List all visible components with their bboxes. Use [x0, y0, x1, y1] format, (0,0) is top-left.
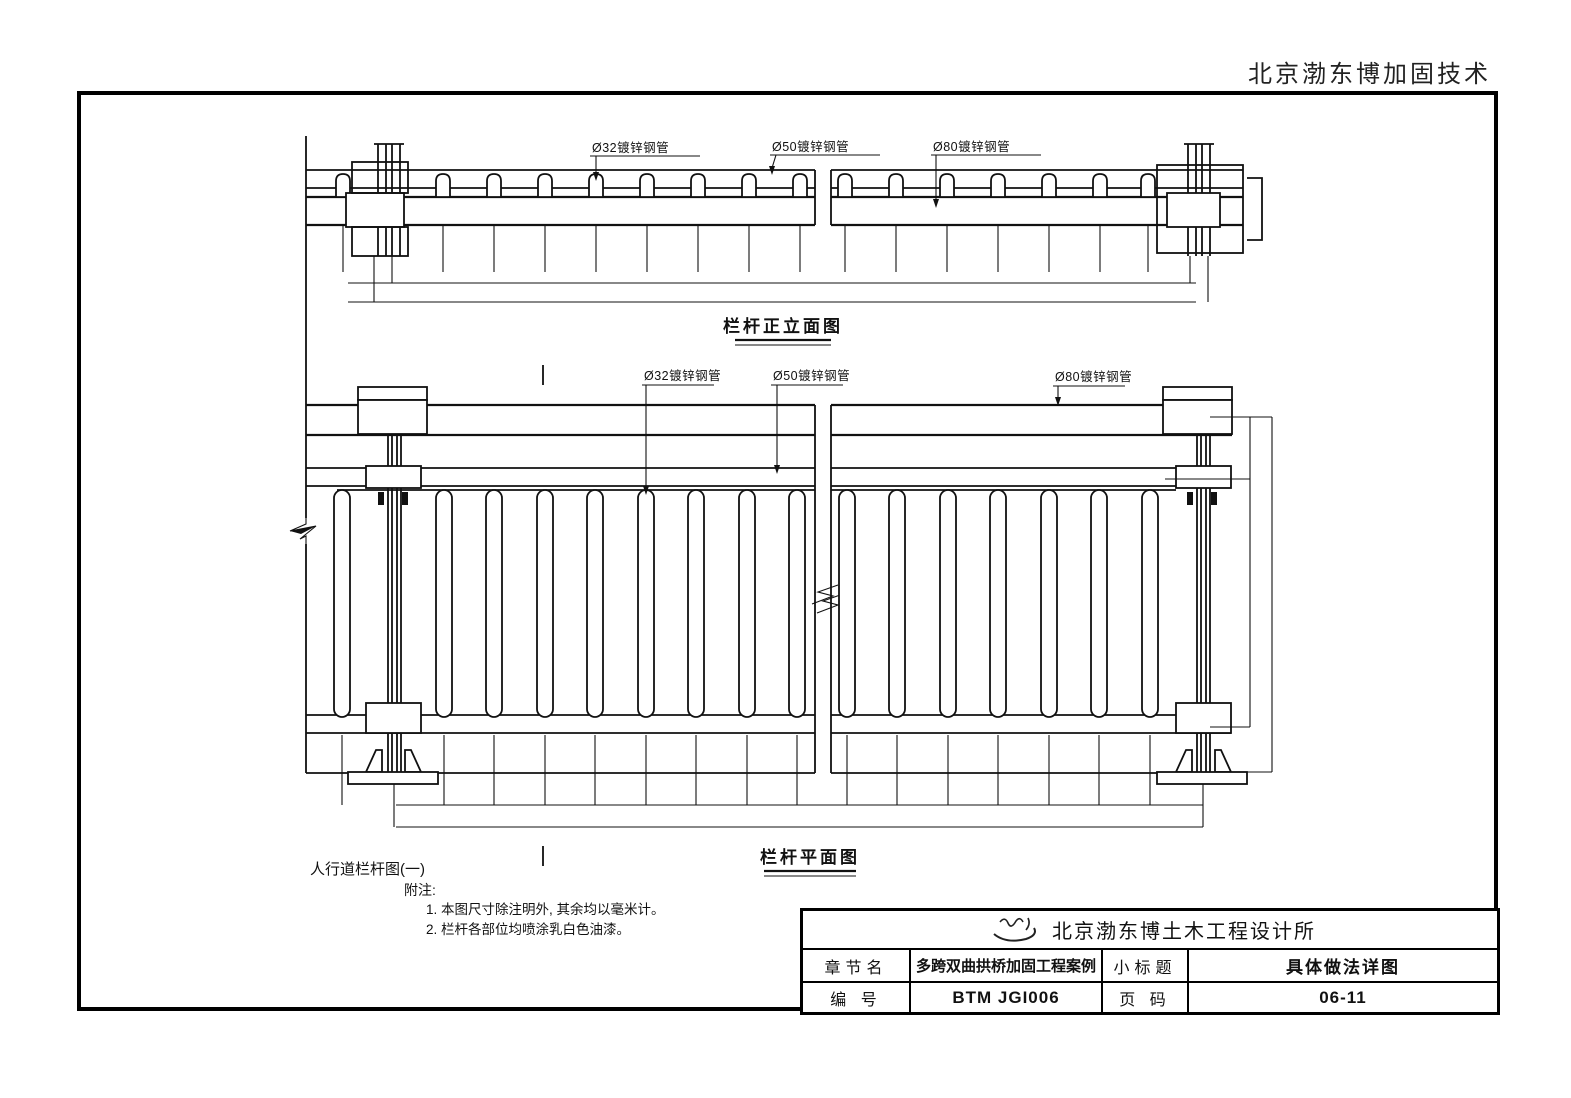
- elevation-view: Ø32镀锌钢管 Ø50镀锌钢管 Ø80镀锌钢管 栏杆正立面图: [306, 139, 1262, 345]
- subtitle-value: 具体做法详图: [1187, 948, 1497, 981]
- note-item: 2. 栏杆各部位均喷涂乳白色油漆。: [426, 918, 630, 938]
- pipe80-label: Ø80镀锌钢管: [1055, 369, 1132, 384]
- end-bracket: [1247, 178, 1262, 240]
- post-collar: [1176, 466, 1231, 488]
- baluster: [1041, 490, 1057, 717]
- baluster: [334, 490, 350, 717]
- baluster: [789, 490, 805, 717]
- number-value: BTM JGI006: [909, 981, 1101, 1012]
- page-value: 06-11: [1187, 981, 1497, 1012]
- baluster: [940, 490, 956, 717]
- baluster: [1142, 490, 1158, 717]
- post-foot: [1215, 750, 1231, 772]
- baluster-top: [940, 174, 954, 197]
- title-block: 北京渤东博土木工程设计所 章节名 多跨双曲拱桥加固工程案例 小标题 具体做法详图…: [800, 908, 1500, 1015]
- baluster-top: [640, 174, 654, 197]
- baluster: [537, 490, 553, 717]
- baluster-top: [1042, 174, 1056, 197]
- design-office-logo: [984, 914, 1042, 946]
- elevation-right-post: [1157, 144, 1262, 256]
- elevation-caption: 栏杆正立面图: [723, 316, 843, 345]
- baluster: [436, 490, 452, 717]
- figure-title: 人行道栏杆图(一): [310, 858, 425, 879]
- post-cap: [358, 400, 427, 434]
- plan-caption-text: 栏杆平面图: [760, 847, 860, 867]
- baluster: [990, 490, 1006, 717]
- post-collar: [366, 466, 421, 488]
- subtitle-label: 小标题: [1101, 948, 1187, 981]
- elevation-left-post: [346, 144, 408, 256]
- baluster-top: [1141, 174, 1155, 197]
- baluster-top: [691, 174, 705, 197]
- baluster-top: [742, 174, 756, 197]
- chapter-label: 章节名: [803, 948, 909, 981]
- baluster-top: [991, 174, 1005, 197]
- baluster-top: [487, 174, 501, 197]
- baluster-top: [793, 174, 807, 197]
- notes-label: 附注:: [404, 880, 436, 900]
- baluster-top: [436, 174, 450, 197]
- page-label: 页 码: [1101, 981, 1187, 1012]
- number-label: 编 号: [803, 981, 909, 1012]
- baluster: [688, 490, 704, 717]
- drawing-sheet: { "header": { "company_header": "北京渤东博加固…: [0, 0, 1571, 1098]
- left-boundary-line: [290, 136, 316, 773]
- elevation-caption-text: 栏杆正立面图: [723, 316, 843, 336]
- baluster-top: [1093, 174, 1107, 197]
- post-foot: [1176, 750, 1192, 772]
- pipe32-label: Ø32镀锌钢管: [592, 140, 669, 155]
- plan-right-post: [1157, 387, 1247, 784]
- baluster: [486, 490, 502, 717]
- plan-caption: 栏杆平面图: [760, 847, 860, 876]
- plan-label-pipe32: Ø32镀锌钢管: [642, 368, 721, 495]
- pipe50-label: Ø50镀锌钢管: [773, 368, 850, 383]
- plan-view: Ø32镀锌钢管 Ø50镀锌钢管 Ø80镀锌钢管 栏杆平面图: [306, 365, 1272, 876]
- baluster-top: [838, 174, 852, 197]
- plan-label-pipe50: Ø50镀锌钢管: [771, 368, 850, 474]
- title-block-header: 北京渤东博土木工程设计所: [803, 911, 1497, 948]
- pipe80-label: Ø80镀锌钢管: [933, 139, 1010, 154]
- baluster-top: [538, 174, 552, 197]
- baluster: [889, 490, 905, 717]
- baluster: [739, 490, 755, 717]
- note-item: 1. 本图尺寸除注明外, 其余均以毫米计。: [426, 898, 665, 918]
- baluster: [587, 490, 603, 717]
- baluster: [839, 490, 855, 717]
- pipe32-label: Ø32镀锌钢管: [644, 368, 721, 383]
- chapter-value: 多跨双曲拱桥加固工程案例: [909, 948, 1101, 981]
- post-foot: [366, 750, 382, 772]
- baluster: [1091, 490, 1107, 717]
- baluster: [638, 490, 654, 717]
- base-plate: [348, 772, 438, 784]
- design-office-name: 北京渤东博土木工程设计所: [1052, 915, 1316, 944]
- baluster-top: [889, 174, 903, 197]
- plan-label-pipe80: Ø80镀锌钢管: [1053, 369, 1132, 406]
- pipe50-label: Ø50镀锌钢管: [772, 139, 849, 154]
- plan-left-post: [348, 387, 438, 784]
- base-plate: [1157, 772, 1247, 784]
- post-foot: [405, 750, 421, 772]
